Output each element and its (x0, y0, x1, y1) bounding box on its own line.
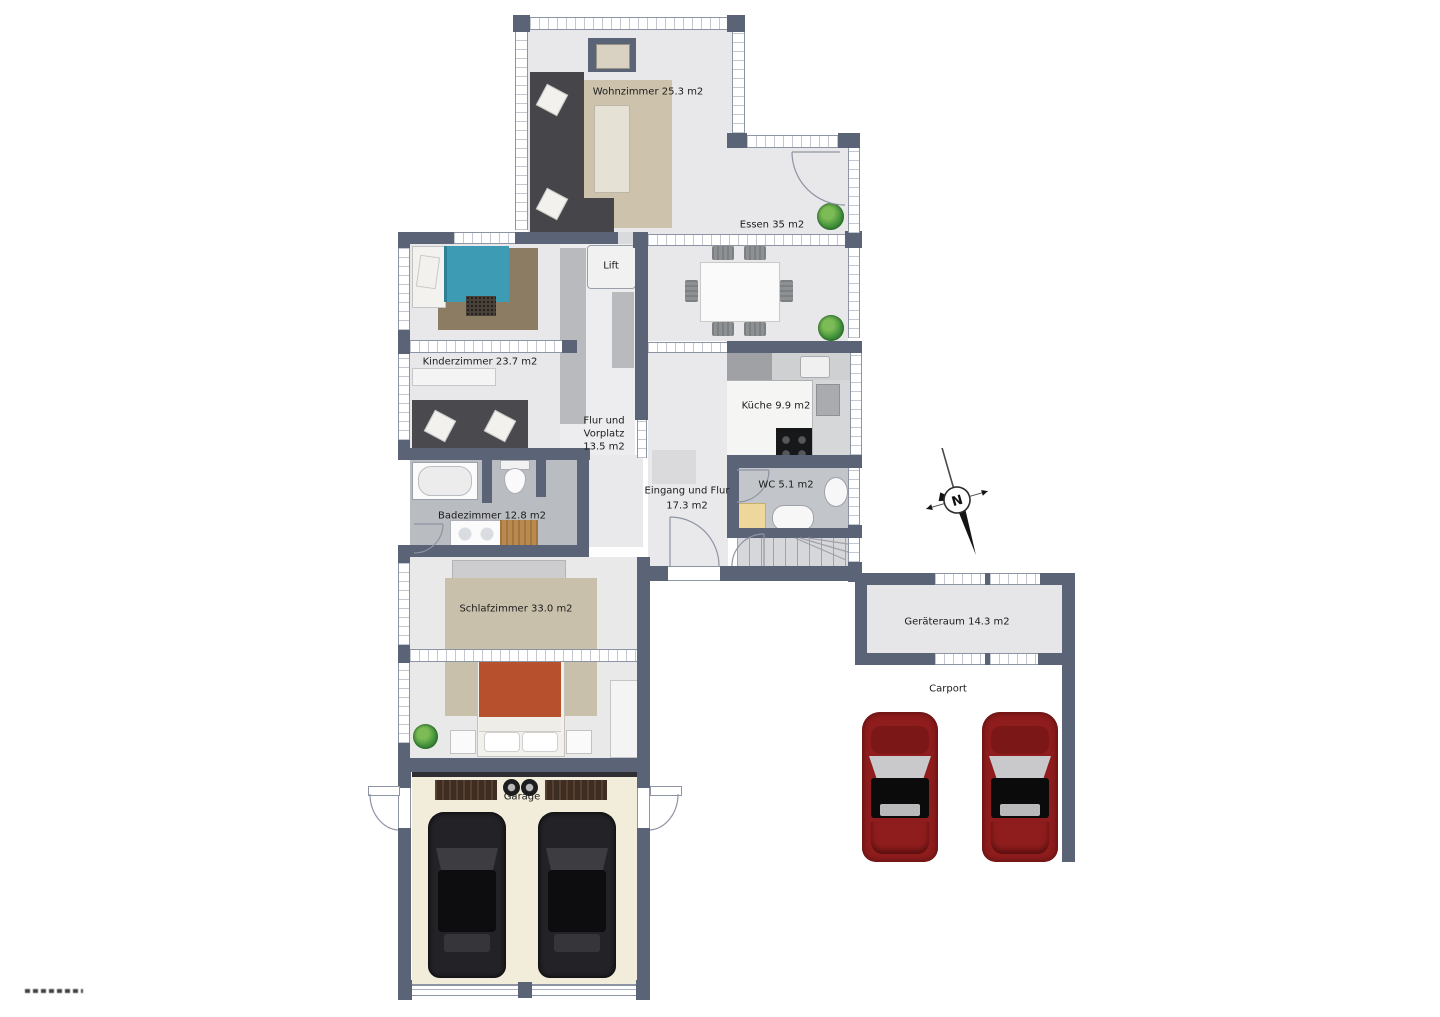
corner-post (838, 133, 860, 148)
room-label-carport: Carport (929, 684, 967, 695)
room-label-schlafzimmer: Schlafzimmer 33.0 m2 (459, 604, 572, 615)
room-label-eingang-line1: Eingang und Flur (645, 486, 730, 497)
wall (398, 545, 589, 557)
window (398, 563, 410, 645)
wall (398, 645, 410, 663)
potted-plant (818, 315, 844, 341)
room-label-geraeteraum: Geräteraum 14.3 m2 (904, 617, 1009, 628)
wall (727, 455, 862, 468)
dining-chair (712, 246, 734, 260)
wall (562, 340, 577, 353)
room-label-garage: Garage (504, 792, 541, 803)
window (515, 32, 528, 230)
dining-chair (712, 322, 734, 336)
window (398, 248, 410, 330)
dining-table (700, 262, 780, 322)
wc-sink (824, 477, 848, 507)
corner-post (398, 545, 410, 563)
dining-chair (744, 322, 766, 336)
bedroom-closet (610, 680, 638, 758)
watermark-smudge (25, 989, 83, 993)
window (530, 17, 727, 30)
window (398, 663, 410, 743)
wall (398, 330, 410, 354)
wall (727, 468, 739, 530)
corner-post (513, 15, 530, 32)
exterior-door-leaf (368, 786, 400, 796)
corner-post (636, 980, 650, 1000)
kids-bed-duvet (444, 246, 509, 302)
room-label-flur-line1: Flur und (583, 416, 624, 427)
carport-wall (1062, 573, 1075, 862)
stairs-floor (737, 538, 848, 568)
bathtub-inner (418, 466, 472, 496)
room-label-wc: WC 5.1 m2 (758, 480, 813, 491)
bed-duvet-orange (479, 660, 561, 720)
corner-post (845, 231, 862, 248)
kitchen-fridge (816, 384, 840, 416)
corner-post (727, 133, 747, 148)
corner-post (398, 232, 410, 248)
corner-post (727, 15, 745, 32)
compass-rose: N (905, 448, 1010, 560)
window (848, 538, 860, 562)
room-label-flur-line3: 13.5 m2 (583, 442, 625, 453)
nightstand (566, 730, 592, 754)
room-label-wohnzimmer: Wohnzimmer 25.3 m2 (593, 87, 704, 98)
bath-bench-wood (500, 520, 538, 546)
corner-post (398, 980, 412, 1000)
room-label-kueche: Küche 9.9 m2 (742, 401, 811, 412)
potted-plant (817, 203, 844, 230)
kitchen-sink (800, 356, 830, 378)
garage-shelf (435, 780, 497, 800)
wall (635, 244, 648, 420)
entry-mat (652, 450, 696, 484)
window (990, 573, 1040, 585)
garage-top-shadow (412, 772, 637, 777)
wall (727, 341, 862, 353)
interior-glazing (410, 340, 562, 353)
window (648, 234, 845, 246)
corner-post (518, 982, 532, 998)
window (398, 354, 410, 440)
wall (515, 232, 618, 244)
wall (637, 557, 650, 762)
nightstand (450, 730, 476, 754)
wall (577, 455, 589, 547)
window (732, 32, 745, 133)
hall-cabinet (560, 248, 586, 424)
window (848, 468, 860, 525)
bed-pillow (522, 732, 558, 752)
garage-shelf (545, 780, 607, 800)
dining-chair (685, 280, 698, 302)
window (648, 342, 727, 353)
window (747, 135, 838, 148)
tv-screen (596, 44, 630, 69)
corridor-strip-floor (589, 455, 643, 547)
wall (398, 758, 650, 772)
garage-door (412, 984, 518, 996)
window (848, 148, 860, 233)
garage-door (532, 984, 636, 996)
window (935, 573, 985, 585)
wc-shower-tray (737, 503, 766, 531)
room-label-essen: Essen 35 m2 (740, 220, 804, 231)
wall (727, 528, 862, 538)
kids-play-mat (466, 296, 496, 316)
bedroom-plant (413, 724, 438, 749)
room-label-badezimmer: Badezimmer 12.8 m2 (438, 511, 546, 522)
dining-chair (780, 280, 793, 302)
toilet-niche-wall (482, 455, 492, 503)
wall (398, 448, 590, 460)
garage-side-door-opening (637, 788, 650, 828)
kitchen-appliance (727, 353, 772, 380)
livingroom-blanket (594, 105, 630, 193)
dining-chair (744, 246, 766, 260)
room-label-flur-line2: Vorplatz (584, 429, 625, 440)
interior-glazing (410, 649, 637, 662)
window (848, 248, 860, 338)
black-car (428, 812, 506, 978)
window (637, 420, 647, 458)
kids-shelf (412, 368, 496, 386)
bed-fold (479, 717, 561, 732)
red-car (982, 712, 1058, 862)
room-label-lift: Lift (603, 261, 619, 272)
black-car (538, 812, 616, 978)
window (850, 353, 862, 455)
toilet-niche-wall (536, 455, 546, 497)
bed-pillow (484, 732, 520, 752)
red-car (862, 712, 938, 862)
hall-cabinet (612, 292, 634, 368)
room-label-kinderzimmer: Kinderzimmer 23.7 m2 (423, 357, 538, 368)
window (454, 232, 515, 244)
bath-vanity (450, 520, 502, 548)
floorplan-canvas: N Wohnzimmer 25.3 m2 Essen 35 m2 Kinderz… (0, 0, 1440, 1017)
wall (848, 525, 862, 538)
front-door-opening (668, 566, 720, 581)
room-label-eingang-line2: 17.3 m2 (666, 501, 708, 512)
exterior-door-leaf (650, 786, 682, 796)
flur-upper-floor (648, 353, 727, 455)
window (990, 653, 1038, 665)
window (935, 653, 985, 665)
